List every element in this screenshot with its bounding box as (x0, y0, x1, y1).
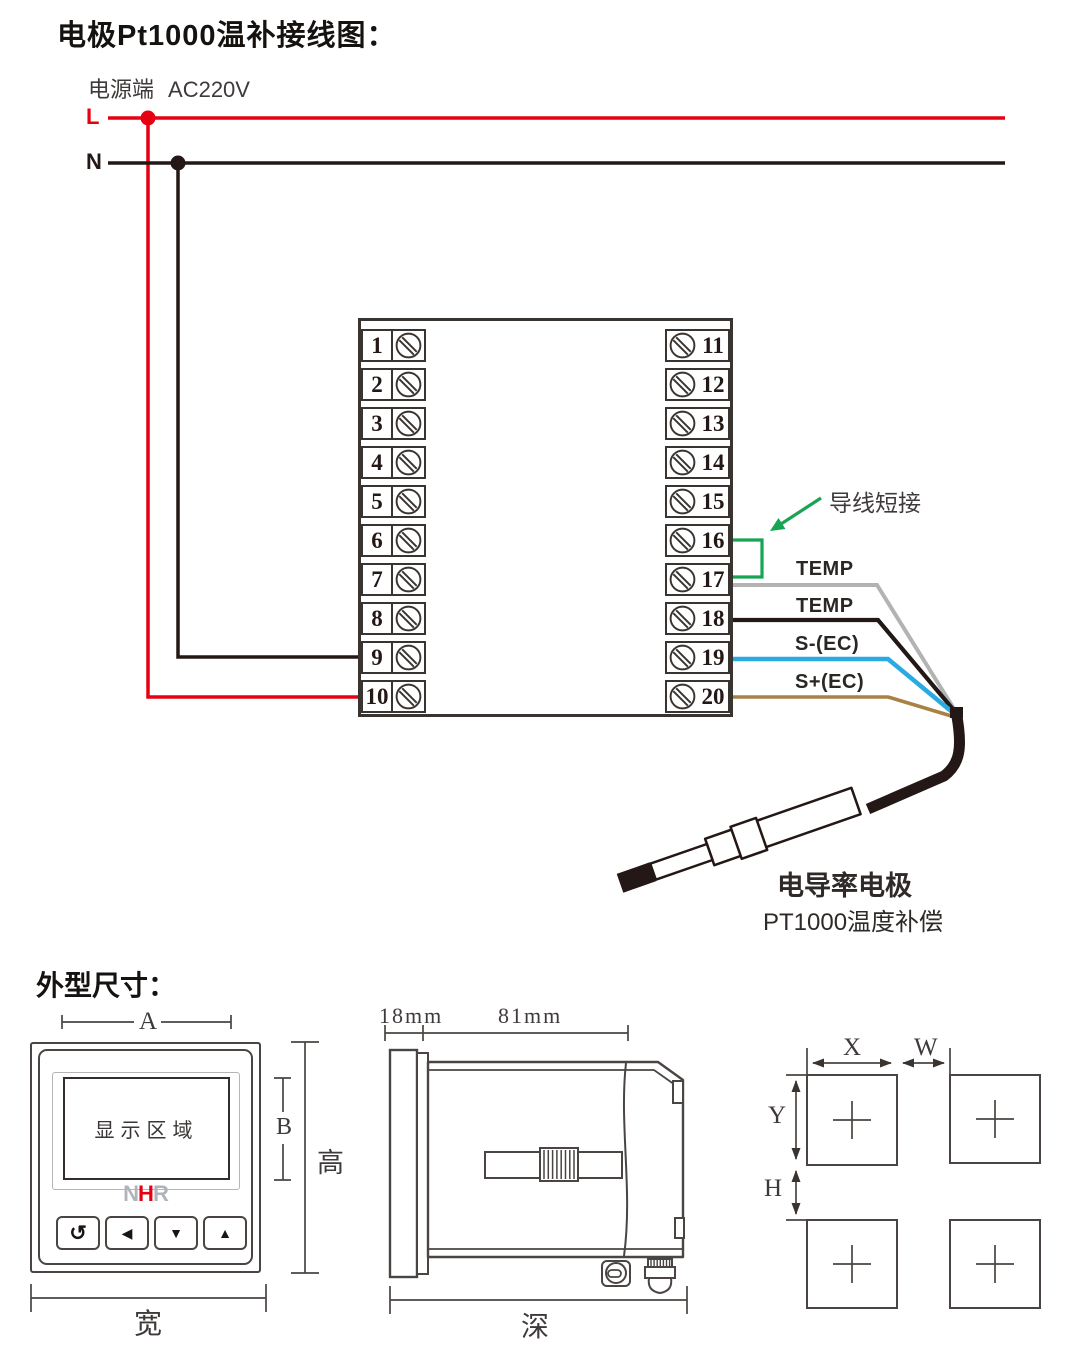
dim-label-y: Y (768, 1102, 786, 1130)
screw-icon (393, 602, 426, 635)
terminal-number: 9 (361, 641, 393, 674)
terminal-2: 2 (361, 368, 426, 401)
wire-label-temp-1: TEMP (796, 558, 854, 581)
page: 电极Pt1000温补接线图： 电源端AC220V L N 12345678910… (0, 0, 1080, 1352)
wire-label-s-minus: S-(EC) (795, 633, 859, 656)
terminal-3: 3 (361, 407, 426, 440)
probe-subtitle: PT1000温度补偿 (763, 902, 943, 937)
terminal-number: 17 (698, 563, 730, 596)
left-button: ◀ (105, 1216, 149, 1250)
terminal-number: 19 (698, 641, 730, 674)
panel-button-row: ↺◀▼▲ (56, 1216, 248, 1250)
screw-icon (393, 368, 426, 401)
power-label-text: 电源端 (88, 77, 154, 102)
screw-icon (665, 563, 698, 596)
screw-icon (665, 680, 698, 713)
left-button-icon: ◀ (122, 1226, 133, 1240)
terminal-number: 7 (361, 563, 393, 596)
screw-icon (665, 641, 698, 674)
jumper-arrow (770, 498, 821, 531)
dim-label-height: 高 (317, 1141, 344, 1180)
dim-label-depth: 深 (521, 1305, 549, 1345)
screw-icon (665, 524, 698, 557)
terminal-number: 11 (698, 329, 730, 362)
terminal-1: 1 (361, 329, 426, 362)
outline-section-title: 外型尺寸： (36, 964, 176, 1004)
terminal-8: 8 (361, 602, 426, 635)
side-view (385, 1025, 687, 1314)
screw-icon (665, 485, 698, 518)
screw-icon (393, 485, 426, 518)
terminal-number: 3 (361, 407, 393, 440)
screw-icon (393, 680, 426, 713)
terminal-6: 6 (361, 524, 426, 557)
terminal-14: 14 (665, 446, 730, 479)
terminal-number: 4 (361, 446, 393, 479)
display-area: 显示区域 (63, 1077, 230, 1180)
terminal-10: 10 (361, 680, 426, 713)
terminal-block: 12345678910 11121314151617181920 (358, 318, 733, 717)
terminal-5: 5 (361, 485, 426, 518)
dim-label-b: B (276, 1114, 292, 1141)
terminal-number: 12 (698, 368, 730, 401)
dim-label-18mm: 18mm (379, 1003, 443, 1029)
terminal-number: 1 (361, 329, 393, 362)
logo-letter-n: N (123, 1181, 138, 1206)
brand-logo: NHR (30, 1181, 261, 1207)
terminal-number: 14 (698, 446, 730, 479)
terminal-number: 5 (361, 485, 393, 518)
terminal-number: 13 (698, 407, 730, 440)
screw-icon (665, 602, 698, 635)
screw-icon (393, 407, 426, 440)
terminal-9: 9 (361, 641, 426, 674)
terminal-19: 19 (665, 641, 730, 674)
power-source-label: 电源端AC220V (88, 72, 250, 104)
neutral-label: N (86, 149, 102, 175)
terminal-16: 16 (665, 524, 730, 557)
terminal-number: 18 (698, 602, 730, 635)
terminal-number: 6 (361, 524, 393, 557)
wire-label-temp-2: TEMP (796, 595, 854, 618)
terminal-number: 10 (361, 680, 393, 713)
panel-cutout (786, 1048, 1040, 1308)
terminal-12: 12 (665, 368, 730, 401)
screw-icon (393, 524, 426, 557)
terminal-4: 4 (361, 446, 426, 479)
screw-icon (393, 329, 426, 362)
down-button-icon: ▼ (169, 1226, 183, 1240)
live-label: L (86, 104, 99, 130)
power-voltage: AC220V (168, 77, 250, 102)
screw-icon (393, 446, 426, 479)
terminal-13: 13 (665, 407, 730, 440)
dim-label-81mm: 81mm (498, 1003, 562, 1029)
terminal-18: 18 (665, 602, 730, 635)
terminal-number: 15 (698, 485, 730, 518)
dim-label-x: X (843, 1034, 861, 1062)
terminal-number: 20 (698, 680, 730, 713)
probe-name: 电导率电极 (777, 864, 912, 903)
screw-icon (665, 329, 698, 362)
screw-icon (665, 446, 698, 479)
screw-icon (393, 563, 426, 596)
terminal-11: 11 (665, 329, 730, 362)
loop-button-icon: ↺ (69, 1223, 87, 1244)
loop-button: ↺ (56, 1216, 100, 1250)
dim-label-h: H (764, 1175, 782, 1203)
wire-label-s-plus: S+(EC) (795, 671, 864, 694)
terminal-15: 15 (665, 485, 730, 518)
terminal-number: 16 (698, 524, 730, 557)
dim-label-a: A (139, 1008, 157, 1036)
jumper-callout-label: 导线短接 (829, 484, 921, 518)
terminal-7: 7 (361, 563, 426, 596)
terminal-number: 2 (361, 368, 393, 401)
screw-icon (665, 407, 698, 440)
screw-icon (665, 368, 698, 401)
screw-icon (393, 641, 426, 674)
jumper-wire (733, 540, 762, 577)
dim-label-w: W (914, 1034, 938, 1062)
up-button: ▲ (203, 1216, 247, 1250)
logo-letter-r: R (153, 1181, 168, 1206)
dim-label-width: 宽 (134, 1302, 162, 1342)
terminal-20: 20 (665, 680, 730, 713)
up-button-icon: ▲ (218, 1226, 232, 1240)
terminal-17: 17 (665, 563, 730, 596)
terminal-number: 8 (361, 602, 393, 635)
page-title: 电极Pt1000温补接线图： (57, 12, 397, 54)
logo-letter-h: H (138, 1181, 153, 1206)
down-button: ▼ (154, 1216, 198, 1250)
